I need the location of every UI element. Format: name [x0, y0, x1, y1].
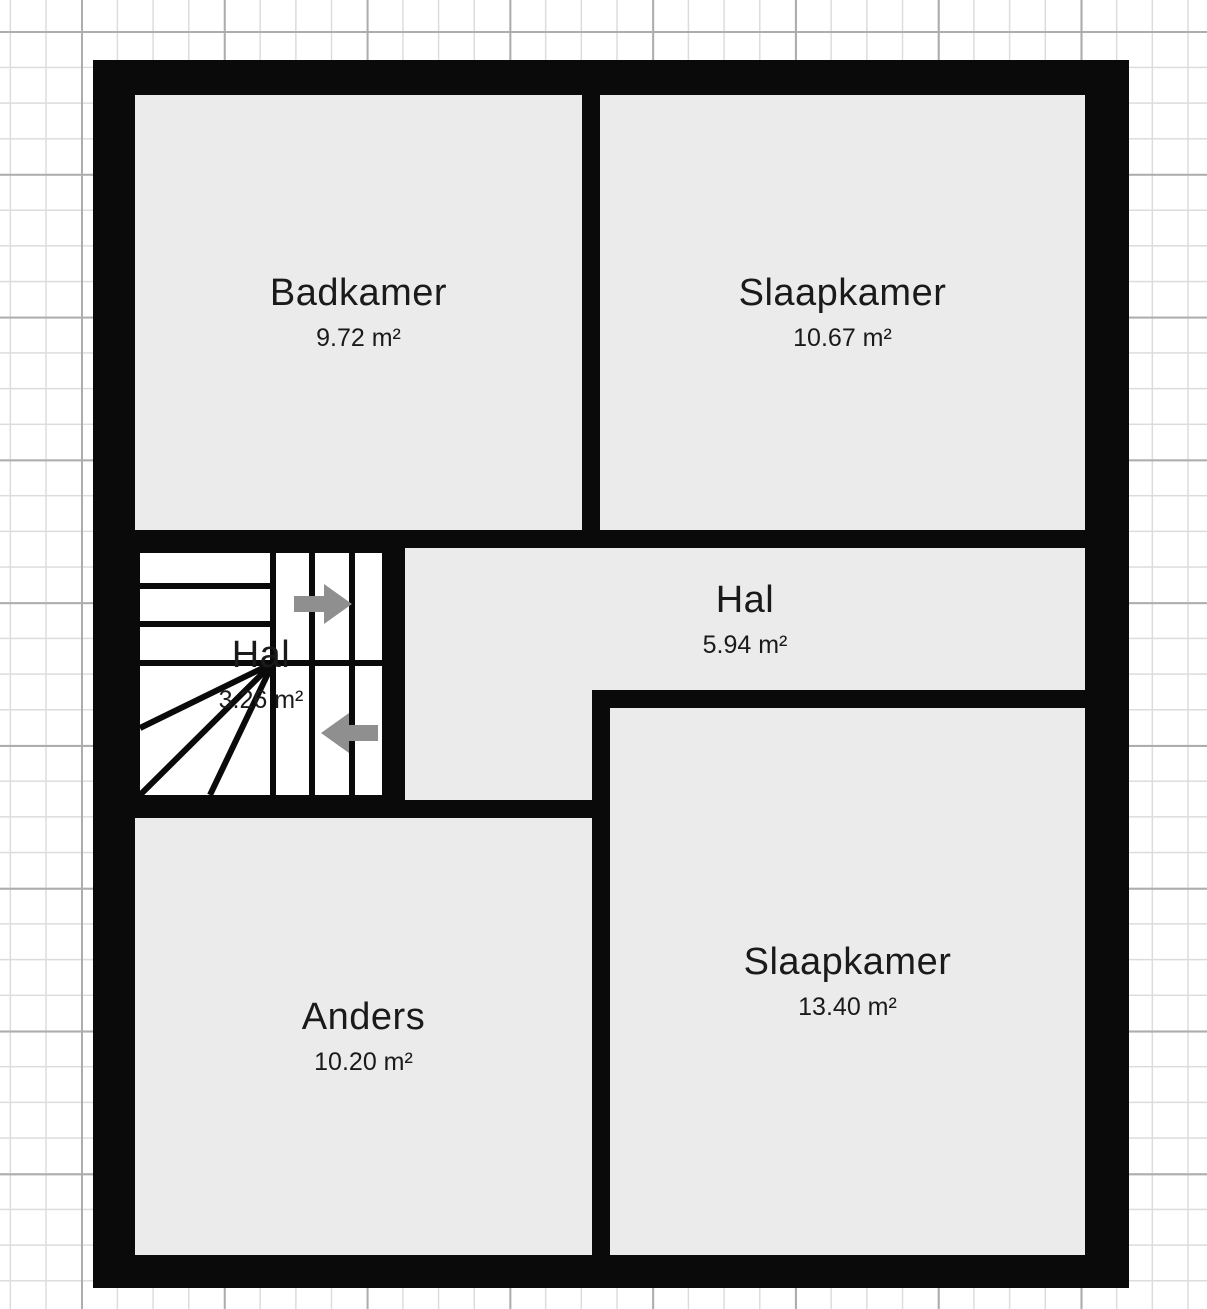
- room-hal-stairs-area: 3.26 m²: [219, 687, 304, 715]
- room-hal-stairs[interactable]: Hal 3.26 m²: [135, 548, 387, 800]
- room-slaapkamer-top[interactable]: Slaapkamer 10.67 m²: [600, 95, 1085, 530]
- room-slaapkamer-top-area: 10.67 m²: [793, 325, 892, 353]
- room-badkamer-label: Badkamer: [270, 272, 447, 316]
- room-badkamer-area: 9.72 m²: [316, 325, 401, 353]
- wall-stairs-hal: [387, 548, 405, 800]
- room-slaapkamer-bottom[interactable]: Slaapkamer 13.40 m²: [610, 708, 1085, 1255]
- floorplan-canvas: Badkamer 9.72 m² Slaapkamer 10.67 m² Hal…: [0, 0, 1207, 1309]
- wall-outer-left: [93, 60, 135, 1288]
- room-hal[interactable]: Hal 5.94 m²: [405, 548, 1085, 690]
- room-anders-area: 10.20 m²: [314, 1049, 413, 1077]
- wall-badkamer-slaapkamer: [582, 95, 600, 530]
- room-slaapkamer-bottom-label: Slaapkamer: [744, 941, 952, 985]
- wall-middle-horizontal: [135, 530, 1085, 548]
- wall-anders-slaapkamer: [592, 708, 610, 1255]
- wall-outer-right: [1085, 60, 1129, 1288]
- wall-outer-top: [93, 60, 1129, 95]
- room-hal-extension[interactable]: [405, 690, 592, 800]
- wall-hal-anders: [135, 800, 592, 818]
- room-anders-label: Anders: [302, 996, 425, 1040]
- room-slaapkamer-top-label: Slaapkamer: [739, 272, 947, 316]
- room-badkamer[interactable]: Badkamer 9.72 m²: [135, 95, 582, 530]
- room-anders[interactable]: Anders 10.20 m²: [135, 818, 592, 1255]
- room-hal-stairs-label: Hal: [232, 634, 291, 678]
- room-hal-area: 5.94 m²: [703, 632, 788, 660]
- room-slaapkamer-bottom-area: 13.40 m²: [798, 994, 897, 1022]
- wall-hal-slaapkamer: [592, 690, 1085, 708]
- wall-outer-bottom: [93, 1255, 1129, 1288]
- room-hal-label: Hal: [716, 579, 775, 623]
